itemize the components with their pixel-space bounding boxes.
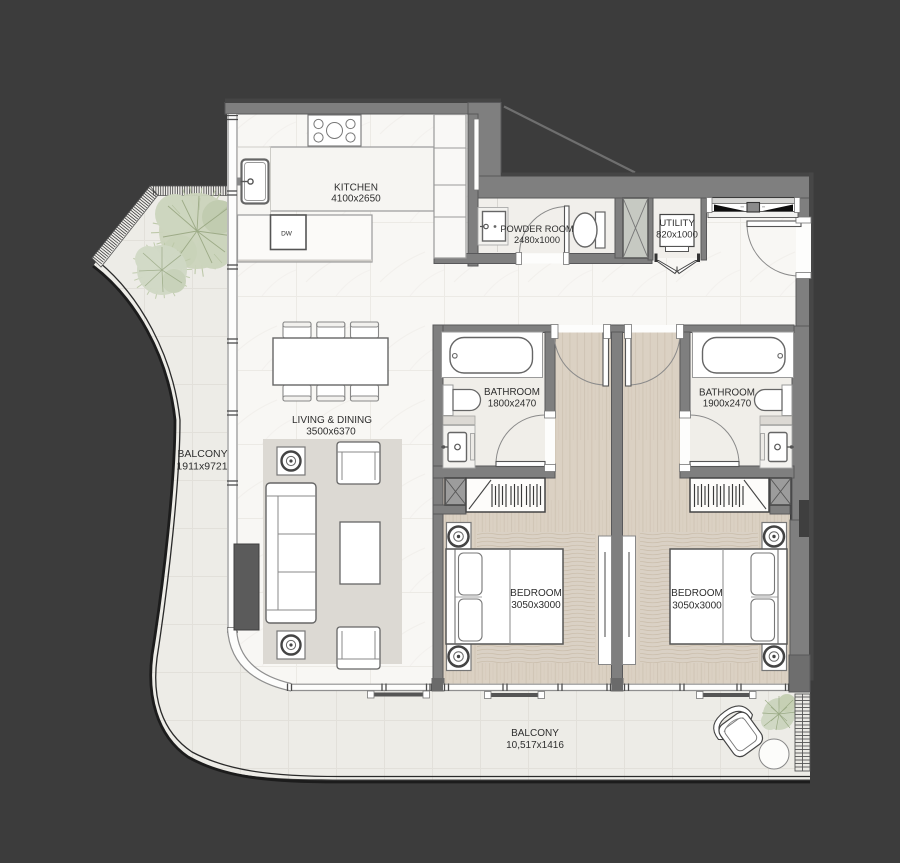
svg-text:BEDROOM: BEDROOM	[671, 588, 723, 599]
svg-text:820x1000: 820x1000	[656, 230, 698, 241]
svg-text:10,517x1416: 10,517x1416	[506, 740, 564, 751]
svg-text:BEDROOM: BEDROOM	[510, 588, 562, 599]
svg-text:DW: DW	[281, 231, 293, 238]
svg-text:BALCONY: BALCONY	[177, 448, 227, 460]
svg-text:POWDER ROOM: POWDER ROOM	[500, 224, 573, 234]
svg-text:UTILITY: UTILITY	[659, 218, 695, 229]
svg-text:LIVING & DINING: LIVING & DINING	[292, 415, 372, 426]
svg-text:BALCONY: BALCONY	[511, 728, 559, 739]
svg-text:BATHROOM: BATHROOM	[699, 388, 755, 399]
svg-text:KITCHEN: KITCHEN	[334, 183, 378, 194]
svg-text:4100x2650: 4100x2650	[331, 194, 381, 205]
svg-text:3050x3000: 3050x3000	[672, 601, 722, 612]
svg-text:2480x1000: 2480x1000	[514, 235, 560, 245]
svg-text:3500x6370: 3500x6370	[306, 427, 356, 438]
svg-text:3050x3000: 3050x3000	[511, 600, 561, 611]
svg-text:1911x9721: 1911x9721	[176, 461, 227, 473]
svg-text:BATHROOM: BATHROOM	[484, 387, 540, 398]
svg-text:1900x2470: 1900x2470	[703, 399, 752, 410]
svg-text:1800x2470: 1800x2470	[488, 399, 537, 410]
